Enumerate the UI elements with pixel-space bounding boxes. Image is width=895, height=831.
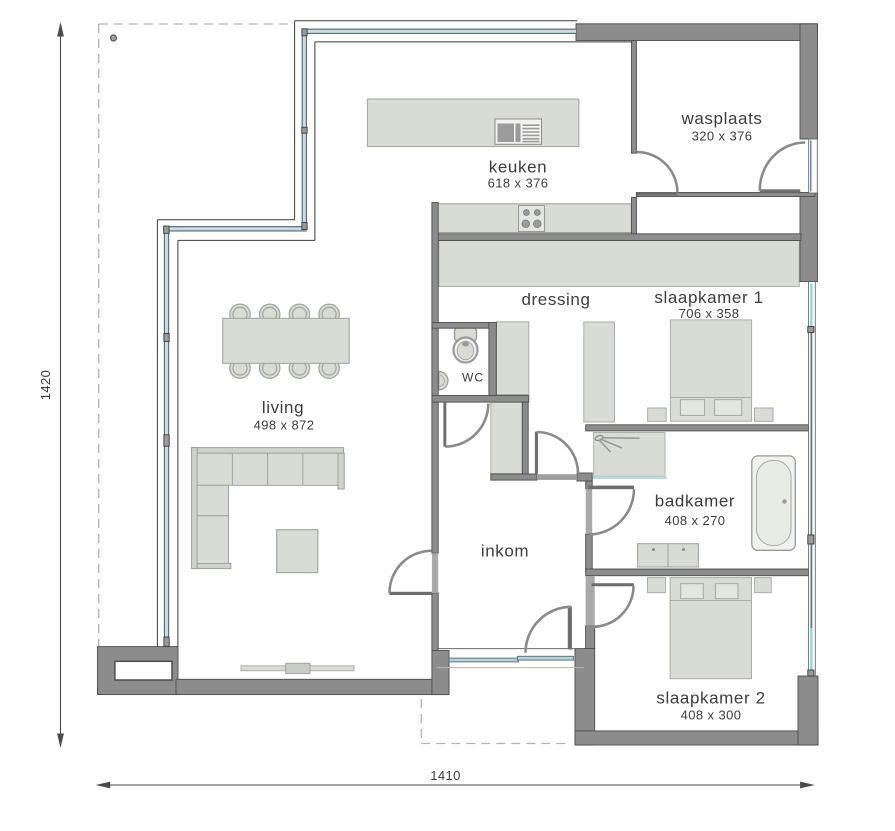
svg-text:slaapkamer 1: slaapkamer 1 [654, 288, 763, 307]
svg-text:408 x 300: 408 x 300 [681, 708, 742, 723]
svg-text:inkom: inkom [481, 542, 529, 561]
svg-text:706 x 358: 706 x 358 [679, 306, 740, 321]
svg-text:408 x 270: 408 x 270 [665, 513, 726, 528]
svg-text:320 x 376: 320 x 376 [692, 129, 753, 144]
svg-text:dressing: dressing [521, 290, 590, 309]
svg-text:wasplaats: wasplaats [681, 109, 763, 128]
svg-text:498 x 872: 498 x 872 [254, 418, 315, 433]
svg-text:1410: 1410 [430, 768, 461, 783]
svg-text:slaapkamer 2: slaapkamer 2 [656, 689, 765, 708]
svg-text:WC: WC [462, 371, 484, 385]
svg-text:1420: 1420 [38, 370, 53, 401]
svg-text:keuken: keuken [489, 158, 547, 177]
svg-text:badkamer: badkamer [655, 492, 735, 511]
svg-text:618 x 376: 618 x 376 [488, 176, 549, 191]
svg-text:living: living [262, 398, 304, 417]
